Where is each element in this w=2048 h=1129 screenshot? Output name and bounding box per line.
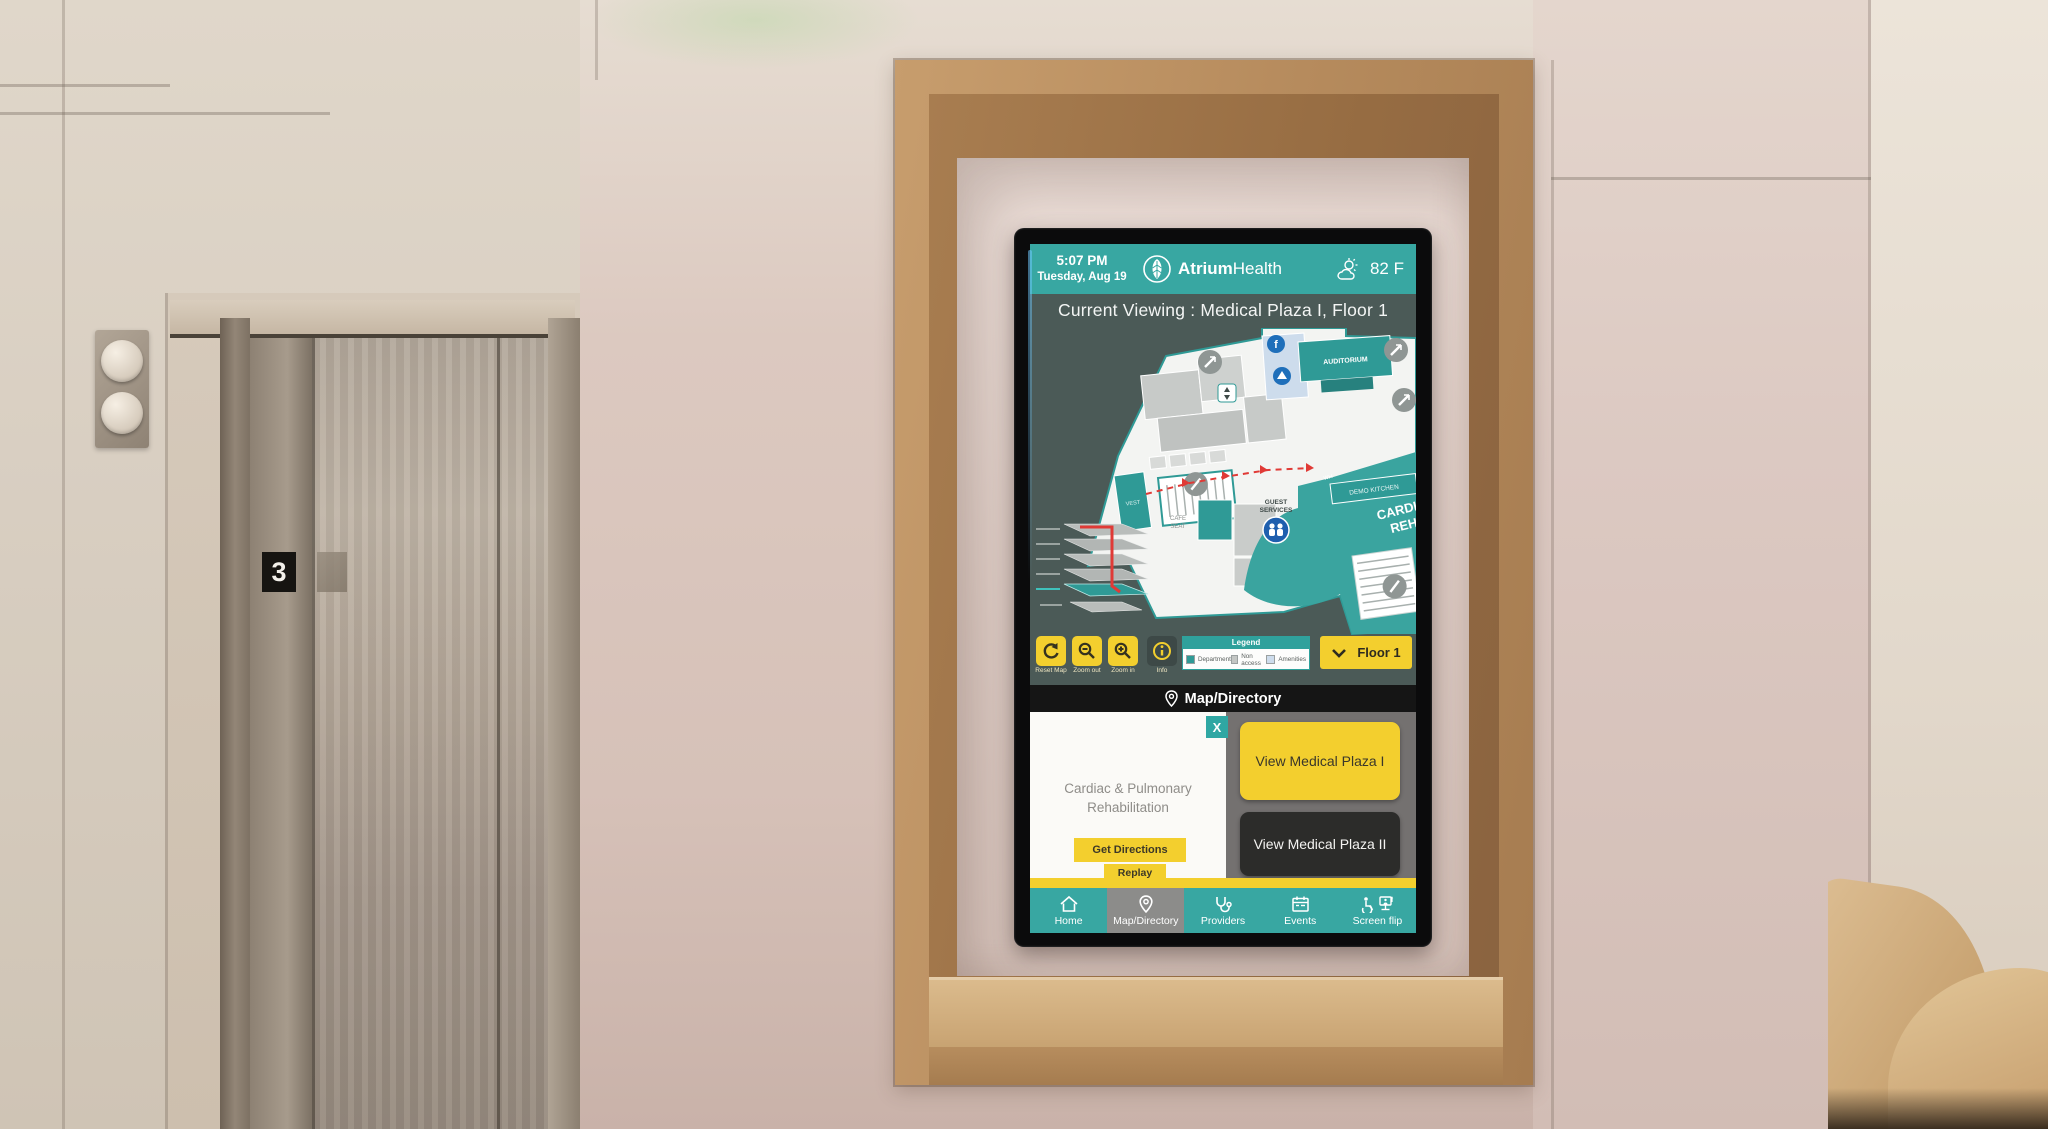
zoom-in-label: Zoom in xyxy=(1101,667,1145,674)
kiosk-screen: 5:07 PM Tuesday, Aug 19 AtriumHealth xyxy=(1030,244,1416,933)
wall-seam xyxy=(595,0,598,80)
view-medical-plaza-1-button[interactable]: View Medical Plaza I xyxy=(1240,722,1400,800)
brand-name: AtriumHealth xyxy=(1178,259,1282,279)
kiosk-header: 5:07 PM Tuesday, Aug 19 AtriumHealth xyxy=(1030,244,1416,294)
map-elevator-icon xyxy=(1218,384,1236,402)
map-stairwell-2 xyxy=(1352,548,1416,620)
map-guest-label-1: GUEST xyxy=(1265,499,1287,506)
destination-name: Cardiac & Pulmonary Rehabilitation xyxy=(1038,780,1218,818)
info-label: Info xyxy=(1140,667,1184,674)
map-legend: Legend Department Non access Amenities xyxy=(1182,636,1310,670)
nav-providers[interactable]: Providers xyxy=(1184,888,1261,933)
wall-seam xyxy=(62,0,65,1129)
brand-logo-group: AtriumHealth xyxy=(1142,254,1282,284)
elevator-call-button-down xyxy=(101,392,143,434)
reset-map-button[interactable] xyxy=(1036,636,1066,666)
map-unit-room xyxy=(1198,500,1232,540)
legend-swatch-nonaccess xyxy=(1231,655,1238,664)
nav-map-directory[interactable]: Map/Directory xyxy=(1107,888,1184,933)
zoom-out-icon xyxy=(1077,641,1097,661)
weather-widget: 82 F xyxy=(1332,257,1416,281)
hallway-photo: 3 5:07 PM Tuesday, Aug 19 xyxy=(0,0,2048,1129)
nav-screen-flip[interactable]: Screen flip xyxy=(1339,888,1416,933)
info-icon xyxy=(1152,641,1172,661)
elevator-braille-plaque xyxy=(317,552,347,592)
section-bar-label: Map/Directory xyxy=(1185,691,1282,707)
map-guest-services-icon xyxy=(1263,517,1289,543)
elevator-jamb-left xyxy=(220,318,250,1129)
info-button[interactable] xyxy=(1147,636,1177,666)
sun-cloud-weather-icon xyxy=(1332,257,1362,281)
time-text: 5:07 PM xyxy=(1030,253,1134,270)
elevator-strike-panel xyxy=(250,338,312,1129)
temperature-text: 82 F xyxy=(1370,259,1404,279)
floor-selector-dropdown[interactable]: Floor 1 xyxy=(1320,636,1412,669)
map-toolbar: Reset Map Zoom out Zoom in xyxy=(1030,636,1416,680)
current-viewing-title: Current Viewing : Medical Plaza I, Floor… xyxy=(1030,300,1416,328)
elevator-jamb-right xyxy=(548,318,580,1129)
kiosk-frame-sill-front xyxy=(929,1047,1503,1085)
wall-seam xyxy=(1551,60,1554,1129)
chair-shadow xyxy=(1828,1088,2048,1129)
elevator-doors xyxy=(250,338,548,1129)
map-guest-label-2: SERVICES xyxy=(1260,507,1293,514)
home-icon xyxy=(1059,895,1079,913)
nav-home[interactable]: Home xyxy=(1030,888,1107,933)
close-card-button[interactable]: X xyxy=(1206,716,1228,738)
zoom-out-button[interactable] xyxy=(1072,636,1102,666)
legend-title: Legend xyxy=(1183,637,1309,649)
map-cafe-label-1: CAFE xyxy=(1170,516,1186,522)
floor-plan-map[interactable]: f AUDITORIUM xyxy=(1030,328,1416,636)
directory-detail-panel: Cardiac & Pulmonary Rehabilitation Get D… xyxy=(1030,712,1416,878)
atrium-health-leaf-logo-icon xyxy=(1142,254,1172,284)
zoom-in-button[interactable] xyxy=(1108,636,1138,666)
elevator-floor-indicator: 3 xyxy=(262,552,296,592)
accent-stripe xyxy=(1030,878,1416,888)
clock: 5:07 PM Tuesday, Aug 19 xyxy=(1030,253,1134,284)
get-directions-button[interactable]: Get Directions xyxy=(1074,838,1186,862)
legend-swatch-department xyxy=(1186,655,1195,664)
wall-seam xyxy=(0,112,330,115)
nav-events[interactable]: Events xyxy=(1262,888,1339,933)
view-medical-plaza-2-button[interactable]: View Medical Plaza II xyxy=(1240,812,1400,876)
legend-swatch-amenities xyxy=(1266,655,1275,664)
map-pin-icon xyxy=(1139,895,1153,913)
legend-item-nonaccess: Non access xyxy=(1231,653,1266,667)
legend-item-amenities: Amenities xyxy=(1266,655,1306,664)
zoom-in-icon xyxy=(1113,641,1133,661)
kiosk-frame-sill xyxy=(929,977,1503,1047)
brand-name-bold: Atrium xyxy=(1178,259,1233,278)
elevator-call-panel xyxy=(95,330,149,448)
date-text: Tuesday, Aug 19 xyxy=(1030,270,1134,284)
elevator-door-seam xyxy=(497,338,500,1129)
chevron-down-icon xyxy=(1331,648,1347,658)
screen-glare xyxy=(1028,250,1032,580)
bottom-navigation: Home Map/Directory Providers xyxy=(1030,888,1416,933)
map-pin-icon xyxy=(1165,690,1178,707)
map-cafe-label-2: SEAT xyxy=(1170,524,1186,530)
brand-name-light: Health xyxy=(1233,259,1282,278)
map-directory-section-bar: Map/Directory xyxy=(1030,685,1416,712)
calendar-icon xyxy=(1291,895,1310,913)
floor-selector-value: Floor 1 xyxy=(1357,645,1400,660)
wall-seam xyxy=(1551,177,1871,180)
lounge-chair xyxy=(1828,858,2048,1129)
accessibility-screen-flip-icon xyxy=(1360,895,1394,913)
destination-card: Cardiac & Pulmonary Rehabilitation Get D… xyxy=(1030,712,1226,878)
legend-item-department: Department xyxy=(1186,655,1231,664)
elevator-door-seam xyxy=(312,338,315,1129)
wall-seam xyxy=(0,84,170,87)
stethoscope-icon xyxy=(1213,895,1233,913)
svg-text:f: f xyxy=(1274,339,1278,351)
reset-icon xyxy=(1041,641,1061,661)
elevator-call-button-up xyxy=(101,340,143,382)
